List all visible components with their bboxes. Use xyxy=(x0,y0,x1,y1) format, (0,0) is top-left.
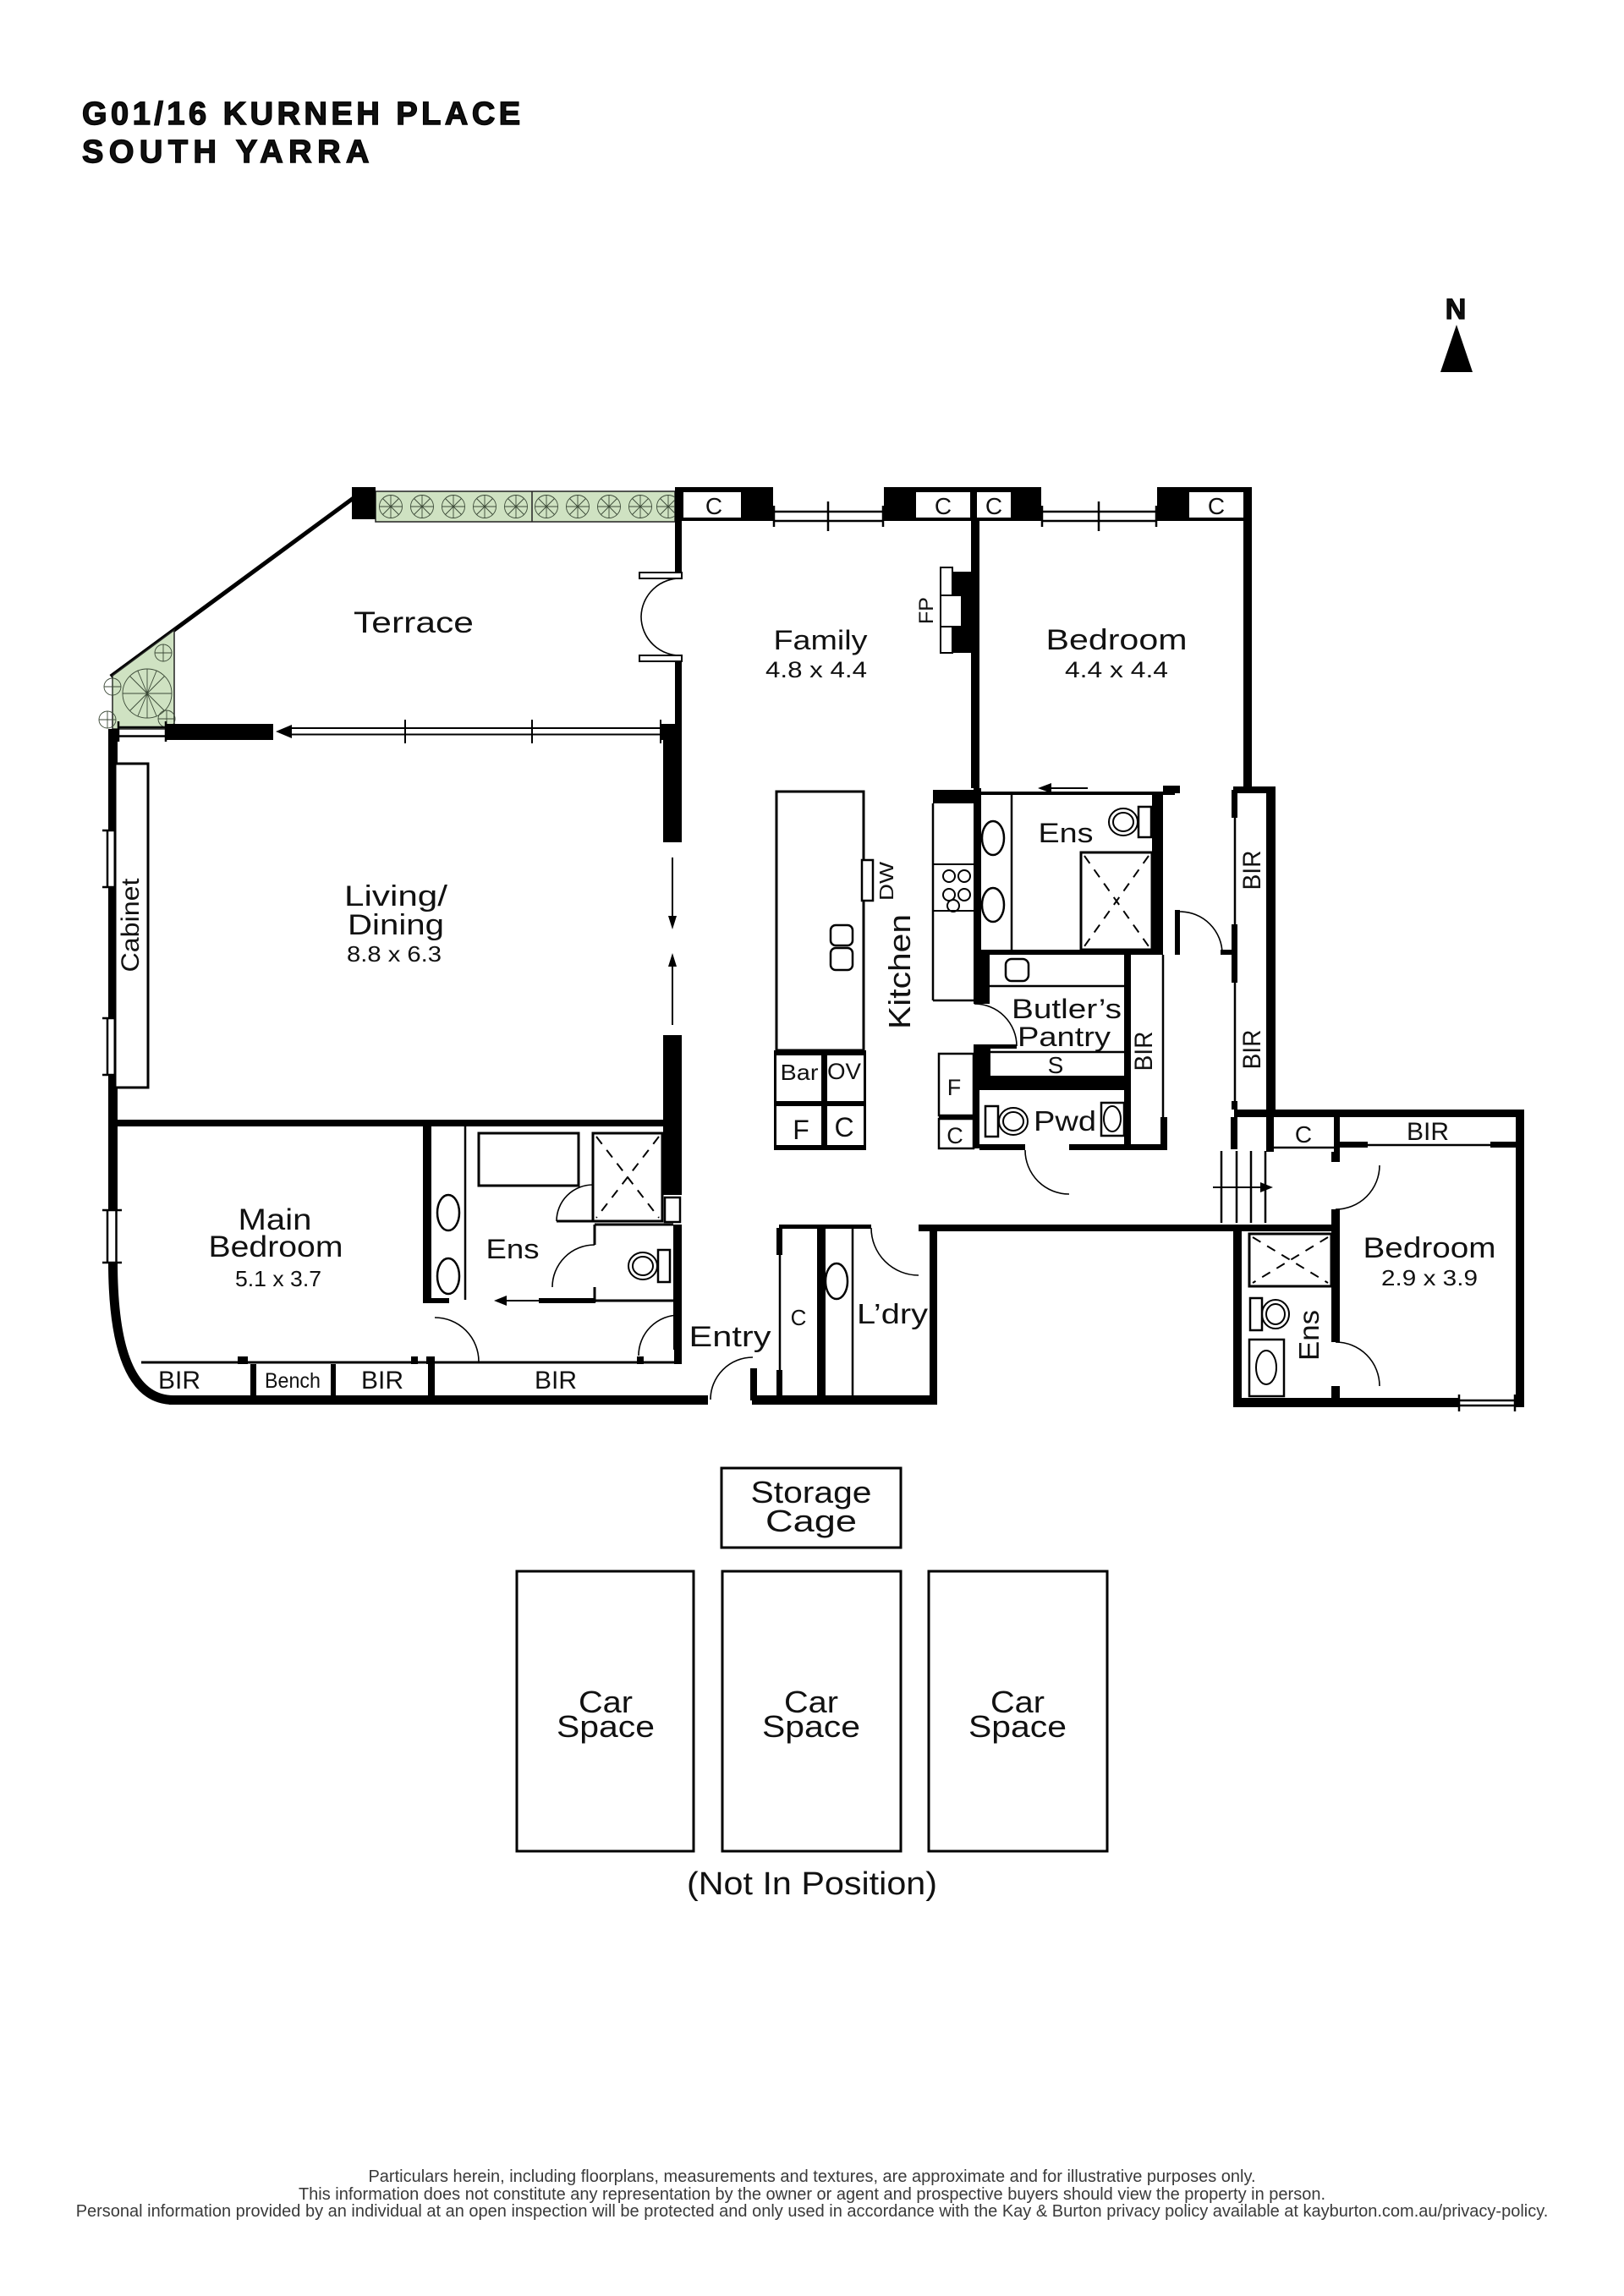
svg-text:C: C xyxy=(985,493,1002,519)
svg-text:C: C xyxy=(935,493,952,519)
svg-text:Dining: Dining xyxy=(348,909,444,941)
svg-text:Bench: Bench xyxy=(265,1369,321,1393)
svg-text:Space: Space xyxy=(762,1709,860,1744)
svg-text:OV: OV xyxy=(827,1059,861,1084)
svg-text:DW: DW xyxy=(875,862,897,901)
svg-text:BIR: BIR xyxy=(1407,1118,1449,1146)
svg-text:C: C xyxy=(946,1123,963,1148)
svg-text:G01/16 KURNEH PLACE: G01/16 KURNEH PLACE xyxy=(82,96,524,132)
svg-text:FP: FP xyxy=(915,597,938,624)
svg-text:2.9 x 3.9: 2.9 x 3.9 xyxy=(1381,1265,1478,1290)
svg-text:Pantry: Pantry xyxy=(1018,1022,1111,1052)
svg-text:Cage: Cage xyxy=(765,1504,857,1538)
svg-text:Bedroom: Bedroom xyxy=(1046,624,1188,656)
svg-text:S: S xyxy=(1048,1052,1064,1078)
svg-text:Ens: Ens xyxy=(1293,1310,1325,1361)
svg-text:Particulars herein, including: Particulars herein, including floorplans… xyxy=(368,2167,1255,2186)
svg-text:BIR: BIR xyxy=(1130,1032,1158,1071)
svg-text:8.8 x 6.3: 8.8 x 6.3 xyxy=(347,941,442,967)
svg-text:BIR: BIR xyxy=(361,1367,403,1395)
svg-text:Bedroom: Bedroom xyxy=(209,1230,343,1263)
svg-text:Space: Space xyxy=(557,1709,655,1744)
svg-text:This information does not cons: This information does not constitute any… xyxy=(299,2185,1325,2204)
svg-text:C: C xyxy=(705,493,722,519)
svg-text:4.8 x 4.4: 4.8 x 4.4 xyxy=(765,657,867,682)
svg-text:BIR: BIR xyxy=(1238,1030,1266,1070)
svg-text:Living/: Living/ xyxy=(344,880,448,912)
svg-text:F: F xyxy=(793,1115,809,1145)
svg-text:Kitchen: Kitchen xyxy=(882,914,917,1029)
svg-text:BIR: BIR xyxy=(1238,851,1266,890)
svg-text:Bar: Bar xyxy=(781,1060,819,1085)
svg-text:Ens: Ens xyxy=(486,1234,540,1264)
svg-text:Terrace: Terrace xyxy=(354,606,474,639)
svg-text:Butler’s: Butler’s xyxy=(1012,994,1122,1024)
svg-text:(Not In Position): (Not In Position) xyxy=(687,1866,937,1902)
svg-text:Space: Space xyxy=(968,1709,1067,1744)
svg-text:Cabinet: Cabinet xyxy=(117,878,145,973)
svg-text:BIR: BIR xyxy=(535,1367,577,1395)
svg-text:BIR: BIR xyxy=(158,1367,200,1395)
svg-text:4.4 x 4.4: 4.4 x 4.4 xyxy=(1065,657,1168,682)
svg-text:Personal information provided: Personal information provided by an indi… xyxy=(76,2202,1549,2221)
svg-text:C: C xyxy=(1295,1121,1312,1148)
svg-text:Pwd: Pwd xyxy=(1034,1105,1096,1137)
svg-text:Family: Family xyxy=(774,625,868,655)
svg-text:N: N xyxy=(1446,293,1467,326)
svg-text:SOUTH YARRA: SOUTH YARRA xyxy=(82,134,375,170)
svg-text:C: C xyxy=(791,1305,807,1330)
svg-text:F: F xyxy=(947,1075,962,1100)
svg-text:L’dry: L’dry xyxy=(857,1298,929,1329)
svg-text:C: C xyxy=(1208,493,1225,519)
svg-text:Bedroom: Bedroom xyxy=(1363,1232,1496,1264)
svg-text:Ens: Ens xyxy=(1039,818,1094,848)
svg-text:C: C xyxy=(834,1112,853,1143)
svg-text:Entry: Entry xyxy=(689,1321,771,1353)
svg-text:5.1 x 3.7: 5.1 x 3.7 xyxy=(235,1266,321,1291)
